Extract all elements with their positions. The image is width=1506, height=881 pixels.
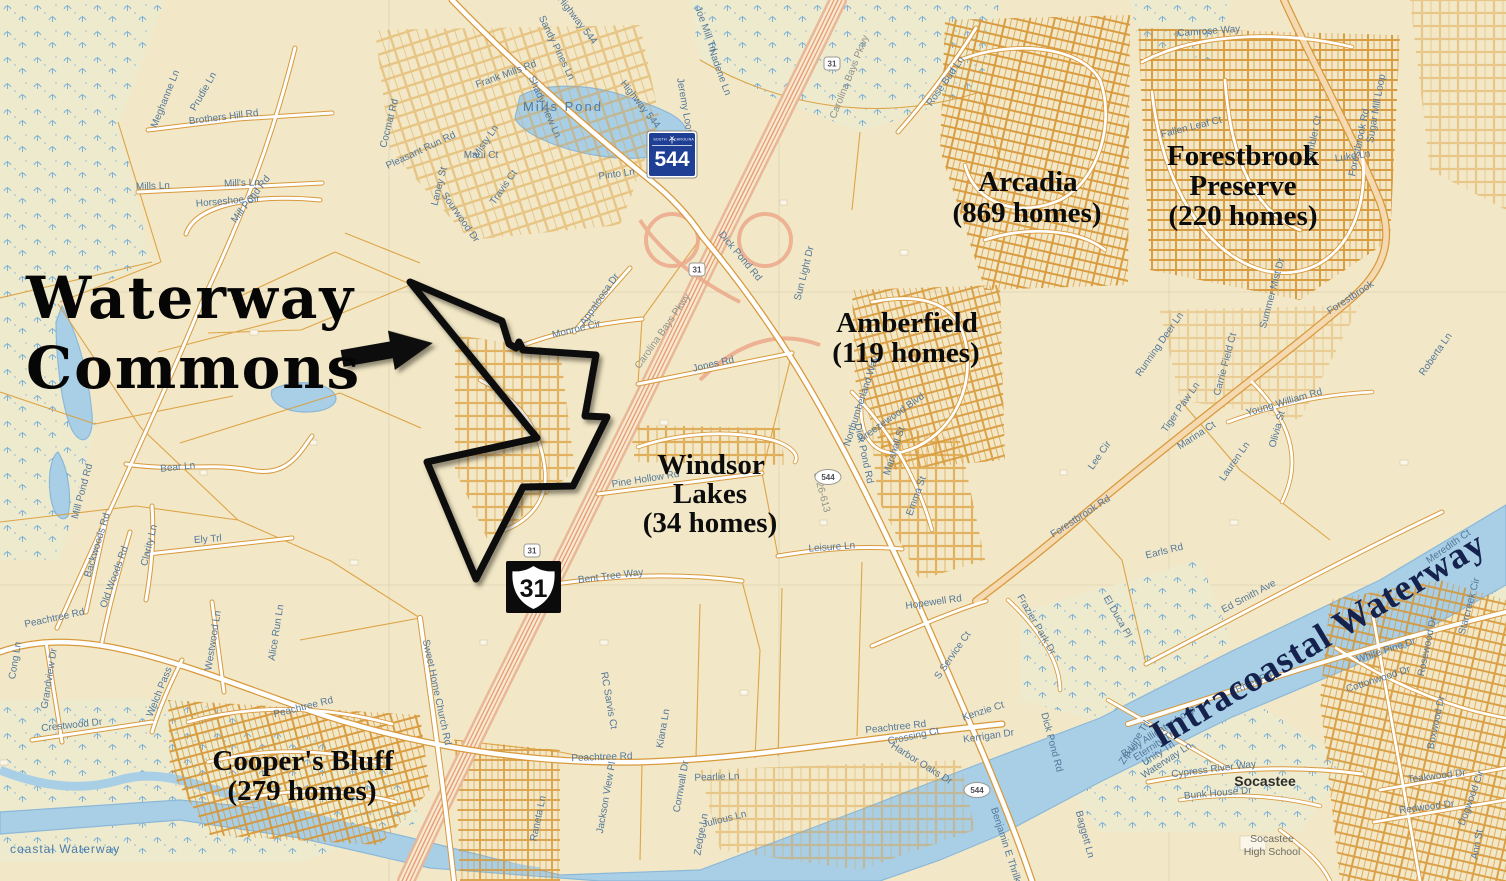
subdivision-label-forestbrook-1: Forestbrook xyxy=(1167,140,1320,172)
subdivision-label-windsor-2: Lakes xyxy=(673,478,747,510)
road-label: Pearlie Ln xyxy=(694,771,739,784)
subdivision-homes-arcadia: (869 homes) xyxy=(952,197,1101,229)
intracoastal-edge-label: coastal Waterway xyxy=(10,842,120,856)
svg-text:544: 544 xyxy=(821,473,835,482)
svg-text:31: 31 xyxy=(693,266,702,275)
mini-544-marker: 544 xyxy=(815,470,841,485)
subdivision-label-coopers-bluff: Cooper's Bluff xyxy=(212,745,394,777)
road-label: Mills Ln xyxy=(136,180,170,192)
map-canvas: Meghanne Ln Prudie Ln Brothers Hill Rd M… xyxy=(0,0,1506,881)
subdivision-label-arcadia: Arcadia xyxy=(978,166,1078,198)
school-label-line2: High School xyxy=(1244,846,1301,858)
svg-text:CAROLINA: CAROLINA xyxy=(674,138,694,142)
mini-31-marker: 31 xyxy=(824,57,840,70)
subdivision-homes-windsor: (34 homes) xyxy=(643,507,778,539)
subdivision-label-windsor-1: Windsor xyxy=(657,449,765,481)
svg-text:544: 544 xyxy=(654,148,689,171)
title-line2: Commons xyxy=(26,334,361,402)
mills-pond-label: Mills Pond xyxy=(523,99,603,114)
title-line1: Waterway xyxy=(25,264,355,332)
svg-text:SOUTH: SOUTH xyxy=(653,138,667,142)
sc-544-shield-icon: SOUTH CAROLINA 544 xyxy=(647,131,697,178)
school-label-line1: Socastee xyxy=(1250,833,1294,845)
subdivision-homes-coopers-bluff: (279 homes) xyxy=(227,775,376,807)
map-screenshot: Meghanne Ln Prudie Ln Brothers Hill Rd M… xyxy=(0,0,1506,881)
us-31-shield-icon: 31 xyxy=(506,561,561,613)
mini-31-marker: 31 xyxy=(689,263,705,276)
road-label: Peachtree Rd xyxy=(571,751,633,764)
subdivision-label-amberfield: Amberfield xyxy=(836,307,978,339)
mini-544-marker: 544 xyxy=(964,783,990,798)
subdivision-label-forestbrook-2: Preserve xyxy=(1189,170,1296,202)
svg-text:31: 31 xyxy=(828,60,837,69)
road-label: Maui Ct xyxy=(464,150,499,161)
subdivision-homes-forestbrook: (220 homes) xyxy=(1168,200,1317,232)
svg-text:31: 31 xyxy=(520,575,548,603)
svg-text:31: 31 xyxy=(528,547,537,556)
road-label: Ely Trl xyxy=(194,533,222,546)
subdivision-homes-amberfield: (119 homes) xyxy=(832,337,979,369)
mini-31-marker: 31 xyxy=(524,544,540,557)
svg-text:544: 544 xyxy=(970,786,984,795)
socastee-label: Socastee xyxy=(1234,773,1296,789)
